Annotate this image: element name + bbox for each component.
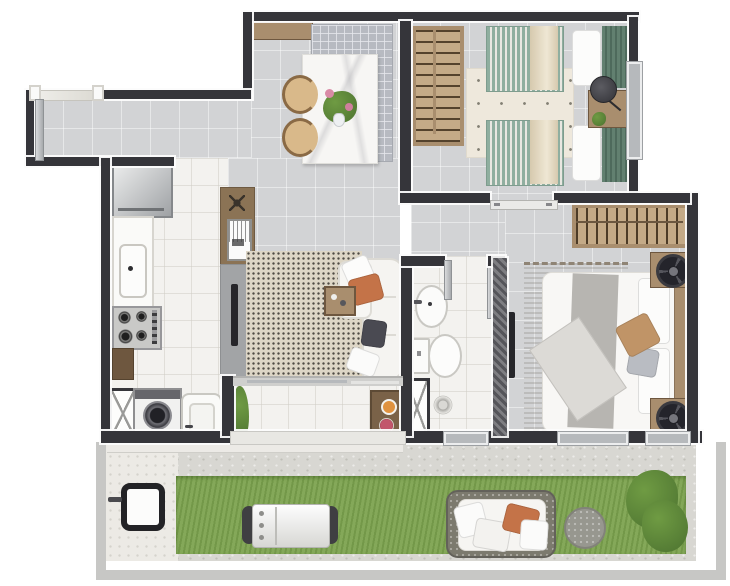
side-gate-handle [108, 497, 122, 502]
entry-door-jamb [92, 85, 104, 101]
shower-drain [433, 395, 453, 415]
wall-bedroom2-bottom-left [400, 193, 490, 203]
wall-bedroom2-left [400, 21, 411, 201]
fan [656, 401, 690, 435]
barbecue-grill [242, 502, 338, 548]
wardrobe-divider [433, 30, 436, 134]
dining-chair [282, 75, 318, 114]
pedestal-sink [413, 283, 446, 326]
stool [590, 76, 617, 103]
sliding-glass [247, 380, 347, 383]
wall-right-main [687, 193, 698, 443]
terrace-low-wall [230, 431, 406, 445]
entry-door-leaf [35, 99, 44, 161]
outdoor-pouf [564, 507, 606, 549]
twin-bed [486, 120, 628, 184]
door-handle [546, 203, 552, 206]
grill-lid-line [275, 507, 277, 545]
bed-drape [530, 26, 558, 90]
terrace-sliding-door [233, 376, 403, 386]
desk-plant [592, 112, 606, 126]
bed-pillow [572, 125, 601, 181]
burner [117, 310, 132, 325]
fan-hub [668, 413, 679, 424]
drink [381, 399, 397, 415]
bedroom-2-door-leaf [490, 200, 558, 210]
cooktop-knobs [152, 310, 157, 344]
fan [656, 254, 690, 288]
bed-headboard [602, 122, 628, 182]
grill-knob [259, 523, 264, 528]
tub-faucet [185, 425, 193, 428]
wall-top-main [243, 12, 639, 21]
tray-item [331, 294, 337, 300]
master-window [558, 432, 628, 445]
washer-panel [135, 390, 180, 399]
bed-drape [530, 120, 558, 184]
toilet-bowl [428, 334, 462, 378]
burner [117, 328, 134, 345]
wall-bedroom2-right-upper [629, 17, 638, 67]
lower-cabinet [112, 348, 134, 380]
tv [231, 284, 238, 346]
flower-pink [325, 89, 334, 98]
bathroom-door-leaf [444, 260, 452, 300]
sink-counter [112, 216, 154, 310]
grill-knob [259, 511, 264, 516]
tub-basin [189, 403, 215, 433]
decor-branch [229, 195, 245, 211]
outdoor-pillow-white [519, 519, 549, 551]
burner [135, 329, 148, 342]
master-window [646, 432, 690, 445]
dining-chair [282, 118, 318, 157]
serving-tray [324, 286, 356, 316]
flower-vase [333, 113, 345, 127]
bathroom-window [444, 432, 488, 445]
garden-bush [642, 500, 688, 552]
wall-bedroom2-bottom-right [554, 193, 690, 203]
sink-faucet [413, 300, 422, 304]
sink-drain [428, 302, 432, 306]
open-wardrobe-rack [572, 204, 695, 248]
wall-bathroom-top-left [401, 256, 445, 266]
side-gate [121, 483, 165, 531]
door-handle [494, 203, 500, 206]
wall-bathroom-left [401, 256, 412, 436]
fan-hub [668, 266, 679, 277]
sideboard-shelf [248, 22, 313, 40]
entry-hall-floor [34, 99, 251, 158]
outdoor-sofa [446, 490, 556, 558]
floor-plan [0, 0, 730, 586]
tray-item [340, 300, 346, 306]
wall-entry-left [26, 90, 34, 166]
toilet-button [417, 351, 421, 356]
wall-entry-bottom [26, 157, 174, 166]
sliding-glass [351, 381, 399, 384]
refrigerator [112, 162, 173, 218]
rack-rail [576, 221, 683, 223]
cooktop [112, 306, 162, 350]
kitchen-faucet [128, 266, 133, 271]
flower-pink [345, 103, 353, 111]
wall-left-main [101, 158, 110, 440]
wall-top-left-jog [243, 12, 252, 99]
bedroom-2-wardrobe [412, 26, 464, 146]
fridge-handle [118, 208, 164, 211]
master-wall-tv [507, 312, 515, 378]
kitchen-sink [119, 244, 147, 298]
grill-knob [259, 535, 264, 540]
dark-pillow [360, 318, 388, 348]
toilet [412, 332, 460, 376]
grill-body [252, 504, 330, 548]
burner [135, 310, 148, 323]
wall-bathroom-right-tiled [493, 258, 507, 436]
sofa [338, 258, 400, 376]
washer-drum [143, 401, 172, 430]
bedroom-2-window [627, 62, 642, 159]
